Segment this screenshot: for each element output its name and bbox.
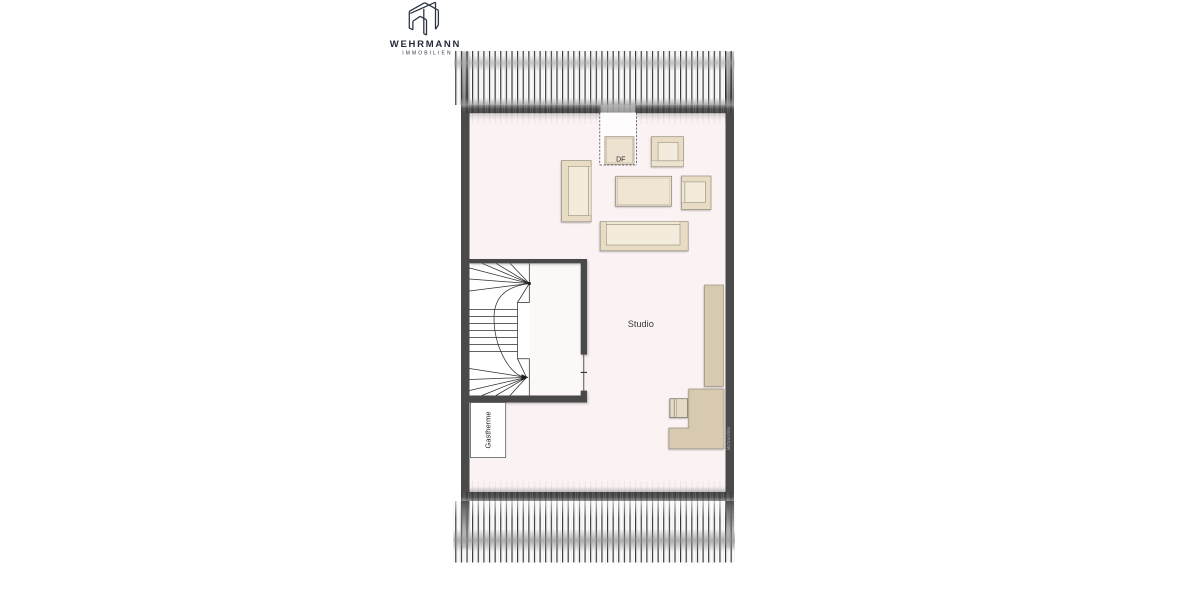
svg-text:DF: DF — [616, 156, 625, 163]
svg-text:IMMOBILIEN: IMMOBILIEN — [402, 51, 451, 57]
svg-text:McGrundriss: McGrundriss — [726, 427, 731, 451]
svg-text:Gastherme: Gastherme — [484, 411, 493, 448]
svg-text:Studio: Studio — [628, 319, 654, 329]
